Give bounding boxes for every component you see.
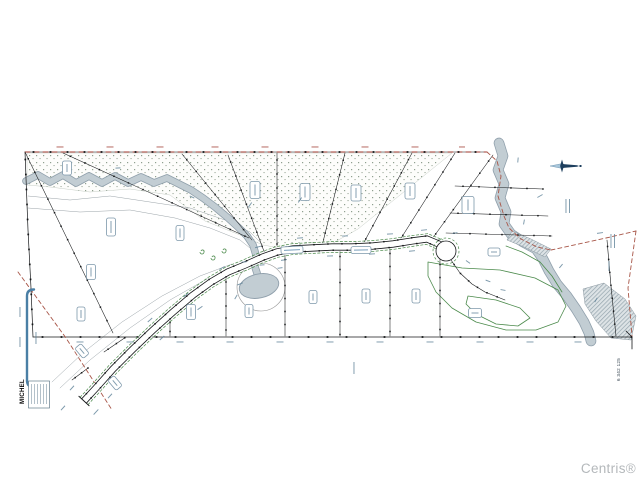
surveyor-stamp-name: MICHEL (19, 379, 26, 404)
lot-number-box (245, 305, 253, 318)
lot-number-box (469, 309, 482, 318)
lot-number-box (63, 161, 72, 175)
lot-number-box (187, 305, 196, 320)
adjacent-lot-number: 6 342 125 (616, 358, 621, 381)
lot-number-box (405, 183, 415, 199)
lot-number-box (250, 182, 260, 199)
lot-number-box (462, 197, 474, 214)
lot-number-box (77, 307, 85, 321)
lot-number-box (281, 246, 303, 254)
lot-number-box (75, 343, 89, 358)
lot-number-box (488, 248, 500, 256)
lot-number-box (362, 289, 370, 303)
lot-number-box (176, 226, 184, 241)
lot-number-box (351, 185, 361, 201)
lot-number-box (87, 265, 96, 280)
north-arrow-icon (550, 160, 582, 173)
lot-number-box (107, 218, 116, 236)
survey-plan-canvas: MICHEL6 342 125 (0, 0, 640, 480)
lot-number-box (351, 246, 371, 253)
centris-watermark: Centris® (581, 461, 636, 476)
road-layer (79, 234, 505, 406)
lot-number-box (309, 291, 317, 304)
survey-plan-image: MICHEL6 342 125 Centris® (0, 0, 640, 480)
lot-number-box (412, 289, 420, 303)
